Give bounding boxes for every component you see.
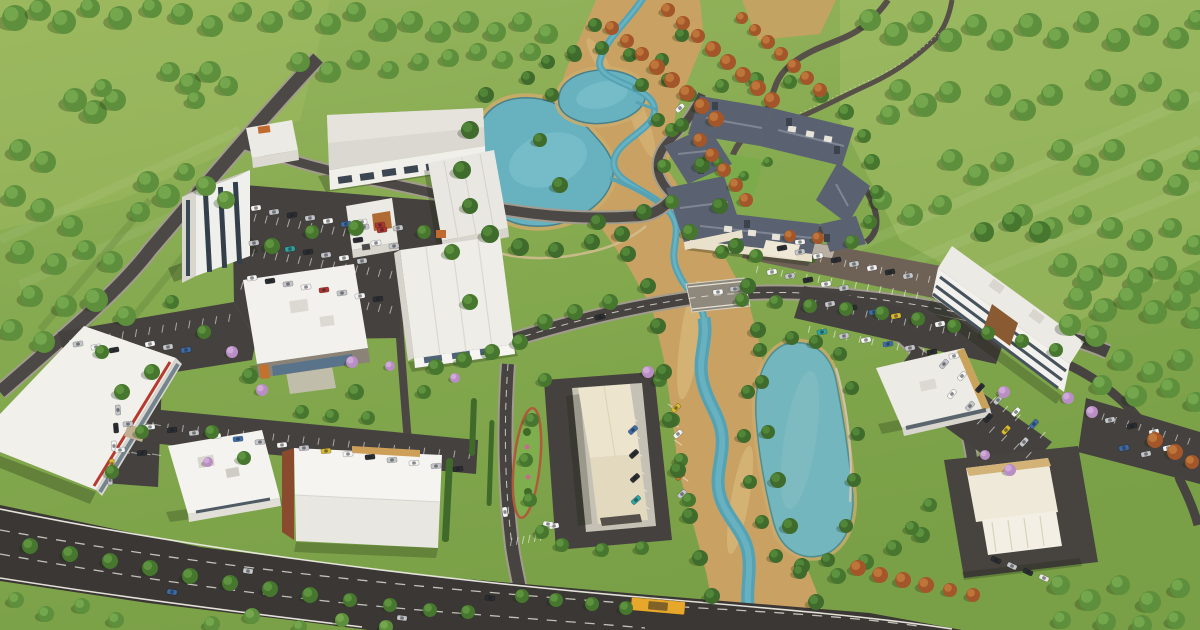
tree-highlight bbox=[851, 561, 860, 570]
tree-highlight bbox=[762, 36, 770, 44]
tree-highlight bbox=[891, 81, 903, 93]
warehouse-rust-wall bbox=[282, 448, 294, 540]
tree-highlight bbox=[143, 561, 152, 570]
tree-highlight bbox=[158, 186, 171, 199]
tree-highlight bbox=[876, 307, 884, 315]
tree-highlight bbox=[86, 290, 99, 303]
tree-highlight bbox=[344, 594, 352, 602]
car-glass bbox=[356, 238, 360, 242]
tree-highlight bbox=[497, 52, 507, 62]
tree-highlight bbox=[770, 550, 778, 558]
tree-highlight bbox=[347, 357, 354, 364]
tree-highlight bbox=[839, 105, 848, 114]
tree-highlight bbox=[173, 5, 185, 17]
car bbox=[303, 249, 314, 255]
tree-highlight bbox=[39, 607, 48, 616]
car bbox=[301, 284, 312, 290]
car-glass bbox=[170, 590, 174, 594]
car-glass bbox=[302, 446, 306, 450]
tree-highlight bbox=[220, 78, 231, 89]
island-flower bbox=[525, 445, 530, 450]
tree-highlight bbox=[227, 347, 234, 354]
car bbox=[431, 463, 441, 469]
tree-highlight bbox=[47, 255, 59, 267]
tree-highlight bbox=[1081, 591, 1093, 603]
tree-highlight bbox=[967, 589, 975, 597]
tree-highlight bbox=[1144, 74, 1155, 85]
tree-highlight bbox=[139, 173, 151, 185]
outparcel2-door bbox=[362, 243, 371, 250]
tree-highlight bbox=[658, 160, 666, 168]
tree-highlight bbox=[603, 295, 612, 304]
tree-highlight bbox=[886, 24, 899, 37]
car-glass bbox=[326, 219, 330, 223]
tower-west-window bbox=[186, 200, 190, 276]
tree-highlight bbox=[676, 119, 684, 127]
tree-highlight bbox=[455, 162, 465, 172]
tree-highlight bbox=[1134, 617, 1145, 628]
car bbox=[337, 290, 348, 296]
car bbox=[269, 209, 280, 215]
tree-highlight bbox=[457, 353, 466, 362]
tree-highlight bbox=[809, 595, 818, 604]
tree-highlight bbox=[9, 593, 18, 602]
tree-highlight bbox=[1172, 580, 1183, 591]
car bbox=[321, 448, 331, 454]
tree-highlight bbox=[846, 236, 854, 244]
tree-highlight bbox=[375, 20, 388, 33]
tree-highlight bbox=[848, 474, 856, 482]
tree-highlight bbox=[1108, 30, 1121, 43]
tree-highlight bbox=[713, 199, 722, 208]
tree-highlight bbox=[1061, 316, 1073, 328]
tree-highlight bbox=[1155, 258, 1168, 271]
tree-highlight bbox=[522, 72, 530, 80]
car-glass bbox=[380, 228, 384, 232]
car-glass bbox=[346, 452, 350, 456]
glass-office-rtu bbox=[289, 299, 308, 313]
tree-highlight bbox=[265, 239, 274, 248]
tree-highlight bbox=[1079, 267, 1093, 281]
tree-highlight bbox=[568, 46, 576, 54]
tree-highlight bbox=[63, 547, 72, 556]
tree-highlight bbox=[35, 333, 47, 345]
tree-highlight bbox=[756, 376, 764, 384]
tree-highlight bbox=[680, 86, 689, 95]
carwash-building bbox=[590, 454, 648, 524]
tree-highlight bbox=[1168, 445, 1177, 454]
tree-highlight bbox=[993, 31, 1005, 43]
tree-highlight bbox=[513, 239, 523, 249]
car-glass bbox=[308, 216, 312, 220]
tree-highlight bbox=[162, 64, 173, 75]
tree-highlight bbox=[118, 308, 129, 319]
tree-highlight bbox=[1164, 220, 1175, 231]
car bbox=[355, 293, 366, 299]
tree-highlight bbox=[677, 17, 685, 25]
car-glass bbox=[280, 443, 284, 447]
car bbox=[233, 436, 243, 442]
tree-highlight bbox=[488, 24, 499, 35]
tree-highlight bbox=[445, 245, 454, 254]
tree-highlight bbox=[198, 178, 209, 189]
tree-highlight bbox=[785, 231, 792, 238]
island-flower bbox=[526, 475, 531, 480]
tree-highlight bbox=[75, 599, 84, 608]
tree-highlight bbox=[770, 296, 778, 304]
car-glass bbox=[546, 522, 550, 526]
car-glass bbox=[798, 240, 802, 244]
tree-highlight bbox=[198, 326, 206, 334]
car bbox=[283, 281, 294, 287]
tree-highlight bbox=[765, 93, 774, 102]
tree-highlight bbox=[526, 414, 534, 422]
tree-highlight bbox=[136, 426, 144, 434]
tree-highlight bbox=[1095, 300, 1108, 313]
tree-highlight bbox=[657, 365, 666, 374]
car-glass bbox=[716, 290, 720, 294]
tree-highlight bbox=[683, 494, 691, 502]
car-glass bbox=[392, 244, 396, 248]
complex-chimney bbox=[834, 146, 840, 154]
tree-highlight bbox=[1091, 71, 1103, 83]
tree-highlight bbox=[431, 23, 443, 35]
tree-highlight bbox=[1098, 614, 1109, 625]
tree-highlight bbox=[873, 568, 882, 577]
tree-highlight bbox=[741, 279, 750, 288]
tree-highlight bbox=[716, 80, 724, 88]
tree-highlight bbox=[82, 0, 93, 11]
tree-highlight bbox=[78, 242, 89, 253]
car bbox=[371, 240, 382, 246]
car bbox=[357, 258, 368, 264]
tree-highlight bbox=[550, 594, 558, 602]
complex-chimney bbox=[786, 118, 792, 126]
tree-highlight bbox=[756, 516, 764, 524]
tree-highlight bbox=[1180, 272, 1193, 285]
tree-highlight bbox=[36, 153, 48, 165]
tree-highlight bbox=[479, 88, 488, 97]
tree-highlight bbox=[362, 412, 370, 420]
tree-highlight bbox=[924, 499, 932, 507]
car bbox=[375, 222, 386, 228]
tree-highlight bbox=[413, 54, 423, 64]
car bbox=[453, 466, 463, 472]
car-glass bbox=[340, 291, 344, 295]
strip-retail-orange bbox=[436, 230, 446, 238]
tree-highlight bbox=[736, 294, 744, 302]
car bbox=[115, 447, 125, 453]
car-glass bbox=[126, 422, 130, 426]
car-glass bbox=[344, 222, 348, 226]
tree-highlight bbox=[31, 1, 43, 13]
tree-highlight bbox=[621, 35, 629, 43]
tree-highlight bbox=[349, 385, 358, 394]
car bbox=[319, 287, 330, 293]
tree-highlight bbox=[967, 16, 979, 28]
tree-highlight bbox=[596, 42, 604, 50]
car-glass bbox=[116, 408, 120, 412]
tree-highlight bbox=[751, 81, 760, 90]
tree-highlight bbox=[858, 130, 866, 138]
car bbox=[251, 205, 262, 211]
tree-highlight bbox=[788, 60, 796, 68]
tree-highlight bbox=[483, 226, 493, 236]
tree-highlight bbox=[666, 196, 674, 204]
car bbox=[485, 595, 495, 601]
tree-highlight bbox=[514, 14, 525, 25]
tree-highlight bbox=[744, 476, 752, 484]
tree-highlight bbox=[742, 386, 750, 394]
car bbox=[167, 427, 177, 433]
car-glass bbox=[368, 455, 372, 459]
tree-highlight bbox=[912, 313, 920, 321]
tree-highlight bbox=[520, 454, 528, 462]
tree-highlight bbox=[775, 48, 783, 56]
car-glass bbox=[434, 464, 438, 468]
tree-highlight bbox=[534, 134, 542, 142]
tree-highlight bbox=[606, 22, 614, 30]
tree-highlight bbox=[96, 80, 106, 90]
tree-highlight bbox=[1171, 291, 1183, 303]
tree-highlight bbox=[651, 319, 660, 328]
tree-highlight bbox=[263, 13, 275, 25]
tree-highlight bbox=[513, 335, 522, 344]
car bbox=[299, 445, 309, 451]
tree-highlight bbox=[996, 154, 1007, 165]
tree-highlight bbox=[539, 374, 547, 382]
tree-highlight bbox=[12, 242, 25, 255]
tree-highlight bbox=[662, 4, 670, 12]
tree-highlight bbox=[349, 221, 358, 230]
tree-highlight bbox=[245, 609, 254, 618]
tree-highlight bbox=[189, 92, 199, 102]
car bbox=[387, 457, 397, 463]
tree-highlight bbox=[106, 466, 114, 474]
tree-highlight bbox=[348, 4, 359, 15]
tree-highlight bbox=[589, 19, 597, 27]
tree-highlight bbox=[294, 621, 302, 629]
tree-highlight bbox=[546, 89, 554, 97]
tree-highlight bbox=[1120, 288, 1133, 301]
tree-highlight bbox=[536, 526, 544, 534]
car-glass bbox=[272, 210, 276, 214]
tree-highlight bbox=[621, 247, 630, 256]
tree-highlight bbox=[110, 8, 123, 21]
tree-highlight bbox=[204, 458, 210, 464]
tree-highlight bbox=[794, 566, 802, 574]
car bbox=[113, 423, 119, 433]
car-glass bbox=[170, 428, 174, 432]
tree-highlight bbox=[940, 30, 953, 43]
tree-highlight bbox=[721, 55, 730, 64]
tree-highlight bbox=[263, 582, 272, 591]
tree-highlight bbox=[549, 243, 558, 252]
tree-highlight bbox=[840, 520, 848, 528]
tree-highlight bbox=[675, 454, 683, 462]
tree-highlight bbox=[1186, 456, 1194, 464]
tree-highlight bbox=[144, 0, 155, 11]
tree-highlight bbox=[1145, 302, 1158, 315]
car-glass bbox=[412, 461, 416, 465]
tree-highlight bbox=[784, 76, 792, 84]
car-glass bbox=[286, 282, 290, 286]
tree-highlight bbox=[1127, 387, 1139, 399]
tree-highlight bbox=[751, 323, 760, 332]
tree-highlight bbox=[865, 155, 874, 164]
tree-highlight bbox=[238, 452, 246, 460]
tree-highlight bbox=[1169, 91, 1181, 103]
tree-highlight bbox=[636, 48, 644, 56]
tree-highlight bbox=[383, 62, 393, 72]
car bbox=[339, 255, 350, 261]
tree-highlight bbox=[864, 216, 872, 224]
tree-highlight bbox=[234, 4, 245, 15]
tree-highlight bbox=[783, 519, 792, 528]
tree-highlight bbox=[585, 235, 594, 244]
tree-highlight bbox=[294, 2, 305, 13]
tree-highlight bbox=[840, 303, 848, 311]
tree-highlight bbox=[115, 385, 124, 394]
tree-highlight bbox=[1016, 101, 1028, 113]
tree-highlight bbox=[1129, 269, 1143, 283]
car-glass bbox=[324, 253, 328, 257]
tree-highlight bbox=[683, 509, 692, 518]
car-glass bbox=[258, 440, 262, 444]
complex-chimney bbox=[744, 220, 750, 228]
car bbox=[115, 405, 121, 415]
car-glass bbox=[148, 425, 152, 429]
tree-highlight bbox=[1139, 16, 1151, 28]
tree-highlight bbox=[804, 300, 812, 308]
tree-highlight bbox=[1143, 363, 1155, 375]
car-glass bbox=[376, 297, 380, 301]
tree-highlight bbox=[243, 369, 252, 378]
tree-highlight bbox=[991, 86, 1003, 98]
tree-highlight bbox=[976, 224, 987, 235]
tree-highlight bbox=[1141, 593, 1153, 605]
tree-highlight bbox=[814, 84, 822, 92]
tree-highlight bbox=[1087, 327, 1099, 339]
tree-highlight bbox=[1016, 335, 1024, 343]
tree-highlight bbox=[1148, 433, 1157, 442]
tree-highlight bbox=[1113, 351, 1125, 363]
tree-highlight bbox=[1020, 15, 1033, 28]
tree-highlight bbox=[694, 134, 702, 142]
tree-highlight bbox=[4, 7, 18, 21]
tree-highlight bbox=[201, 63, 213, 75]
tree-highlight bbox=[822, 554, 830, 562]
tree-highlight bbox=[485, 345, 494, 354]
tree-highlight bbox=[568, 305, 577, 314]
tree-highlight bbox=[166, 296, 174, 304]
tree-highlight bbox=[3, 321, 15, 333]
tree-highlight bbox=[969, 166, 981, 178]
car-glass bbox=[342, 256, 346, 260]
car bbox=[321, 252, 332, 258]
tree-highlight bbox=[740, 172, 746, 178]
tree-highlight bbox=[429, 360, 438, 369]
tree-highlight bbox=[915, 95, 928, 108]
tree-highlight bbox=[352, 52, 363, 63]
tree-highlight bbox=[183, 569, 192, 578]
tree-highlight bbox=[1049, 29, 1061, 41]
tree-highlight bbox=[636, 79, 644, 87]
car-glass bbox=[396, 226, 400, 230]
complex-dormer bbox=[748, 230, 757, 237]
tree-highlight bbox=[665, 73, 674, 82]
car-glass bbox=[400, 616, 404, 620]
tree-highlight bbox=[63, 217, 75, 229]
tree-highlight bbox=[23, 539, 32, 548]
tree-highlight bbox=[219, 192, 229, 202]
car-glass bbox=[250, 276, 254, 280]
tree-highlight bbox=[871, 186, 879, 194]
tree-highlight bbox=[591, 215, 600, 224]
complex-dormer bbox=[772, 234, 781, 241]
tree-highlight bbox=[1169, 176, 1181, 188]
tree-highlight bbox=[1094, 377, 1105, 388]
tree-highlight bbox=[181, 75, 193, 87]
tree-highlight bbox=[540, 26, 551, 37]
tree-highlight bbox=[882, 107, 893, 118]
car-glass bbox=[304, 285, 308, 289]
tree-highlight bbox=[652, 114, 660, 122]
tree-highlight bbox=[321, 15, 333, 27]
tree-highlight bbox=[1169, 29, 1181, 41]
tree-highlight bbox=[706, 149, 714, 157]
tree-highlight bbox=[463, 295, 472, 304]
tree-highlight bbox=[729, 239, 738, 248]
car-glass bbox=[288, 247, 292, 251]
tree-highlight bbox=[424, 604, 432, 612]
car-glass bbox=[378, 223, 382, 227]
tree-highlight bbox=[292, 54, 303, 65]
tree-highlight bbox=[650, 60, 659, 69]
tree-highlight bbox=[1079, 13, 1091, 25]
tree-highlight bbox=[516, 590, 524, 598]
car bbox=[353, 237, 364, 243]
tree-highlight bbox=[683, 225, 692, 234]
tree-highlight bbox=[1173, 351, 1185, 363]
car bbox=[305, 215, 316, 221]
car bbox=[502, 507, 508, 518]
tree-highlight bbox=[671, 463, 680, 472]
tree-highlight bbox=[553, 178, 562, 187]
car bbox=[389, 243, 400, 249]
car-glass bbox=[324, 449, 328, 453]
tree-highlight bbox=[861, 11, 873, 23]
car bbox=[287, 212, 298, 218]
tree-highlight bbox=[23, 287, 35, 299]
tree-highlight bbox=[1169, 612, 1179, 622]
glass-office-roof bbox=[243, 264, 368, 364]
tree-highlight bbox=[786, 332, 794, 340]
tree-highlight bbox=[103, 554, 112, 563]
tree-highlight bbox=[944, 584, 952, 592]
tree-highlight bbox=[109, 613, 118, 622]
tree-highlight bbox=[852, 428, 860, 436]
car-glass bbox=[254, 206, 258, 210]
car bbox=[713, 289, 723, 295]
tree-highlight bbox=[736, 68, 745, 77]
tree-highlight bbox=[556, 539, 564, 547]
car bbox=[409, 460, 419, 466]
tree-highlight bbox=[471, 44, 481, 54]
tree-highlight bbox=[738, 430, 746, 438]
aerial-site-rendering bbox=[0, 0, 1200, 630]
tree-highlight bbox=[1005, 465, 1012, 472]
